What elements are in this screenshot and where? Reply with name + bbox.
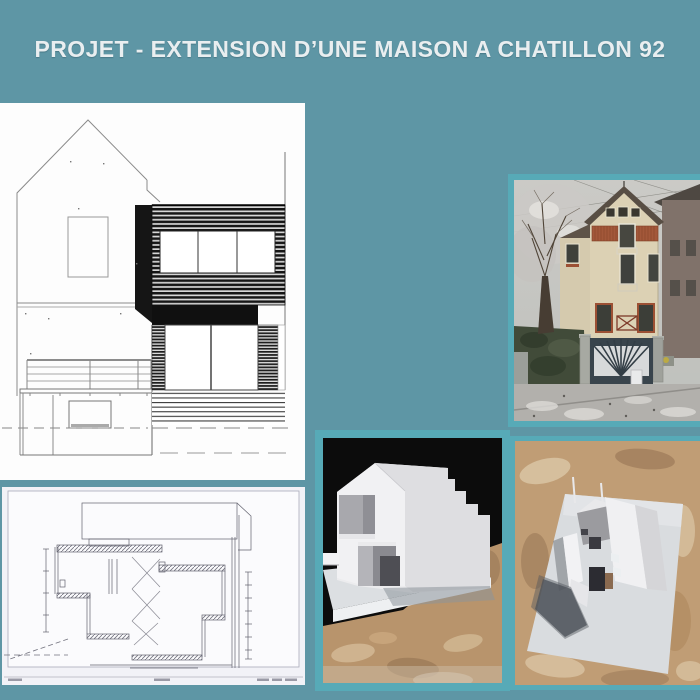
existing-house-photo: [508, 174, 700, 427]
road: [514, 384, 700, 421]
section-drawing: [2, 487, 305, 685]
elevation-drawing-panel: [0, 103, 305, 480]
middle-window: [620, 254, 635, 284]
page-title: PROJET - EXTENSION D’UNE MAISON A CHATIL…: [0, 36, 700, 63]
stone-wall: [514, 352, 528, 385]
extension-side-face: [135, 205, 152, 323]
house-photo-scene: [514, 180, 700, 421]
extension-window-band: [160, 231, 275, 273]
model-courtyard: [589, 567, 605, 591]
model-doorway: [380, 556, 400, 586]
titleblock-marks: [4, 677, 303, 681]
deck-cladding: [152, 392, 285, 425]
extension-header-band: [152, 305, 258, 325]
ground-lines: [2, 428, 295, 453]
ground-window-left: [596, 304, 612, 332]
presentation-page: PROJET - EXTENSION D’UNE MAISON A CHATIL…: [0, 0, 700, 700]
ground-window-right: [638, 304, 654, 332]
model-balcony-slab: [323, 553, 339, 565]
extension-volume: [135, 205, 285, 425]
balcony-railing: [20, 360, 152, 396]
model-opening: [589, 537, 601, 549]
garage-level: [20, 393, 152, 455]
elevation-drawing: [0, 103, 305, 480]
model-photo-aerial-view: [510, 436, 700, 690]
model-stair-piece: [605, 573, 613, 589]
drawing-speckles: [25, 161, 137, 354]
attic-window: [619, 224, 635, 248]
model-aerial-scene: [515, 441, 700, 685]
section-drawing-panel: [2, 487, 305, 685]
model-front-scene: [323, 438, 502, 683]
model-photo-front-view: [315, 430, 510, 691]
